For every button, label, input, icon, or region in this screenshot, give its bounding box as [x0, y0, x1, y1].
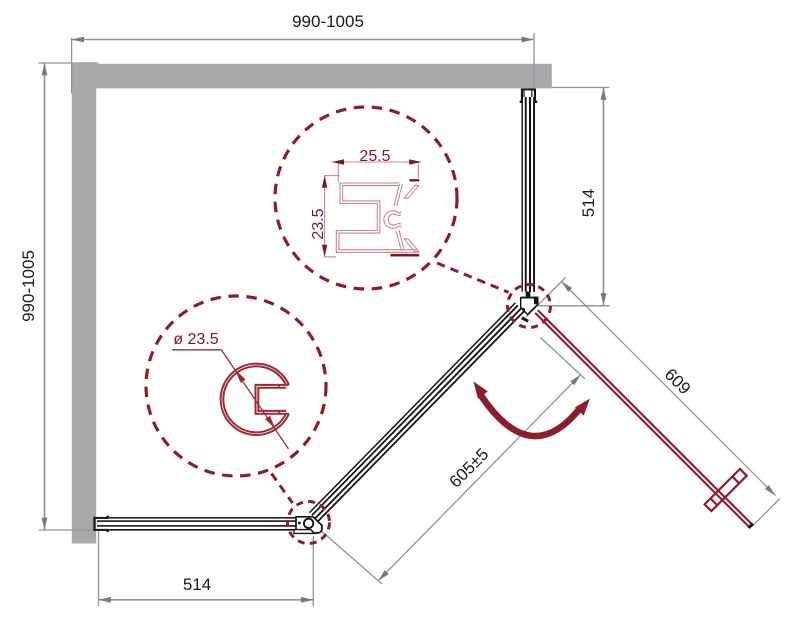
svg-text:514: 514: [579, 189, 598, 217]
svg-text:605±5: 605±5: [446, 445, 493, 492]
svg-text:25.5: 25.5: [359, 148, 390, 165]
svg-text:990-1005: 990-1005: [292, 12, 364, 31]
svg-text:ø 23.5: ø 23.5: [173, 331, 218, 348]
svg-text:990-1005: 990-1005: [19, 250, 38, 322]
svg-text:514: 514: [183, 575, 211, 594]
svg-text:609: 609: [661, 365, 694, 398]
svg-text:23.5: 23.5: [310, 208, 327, 239]
